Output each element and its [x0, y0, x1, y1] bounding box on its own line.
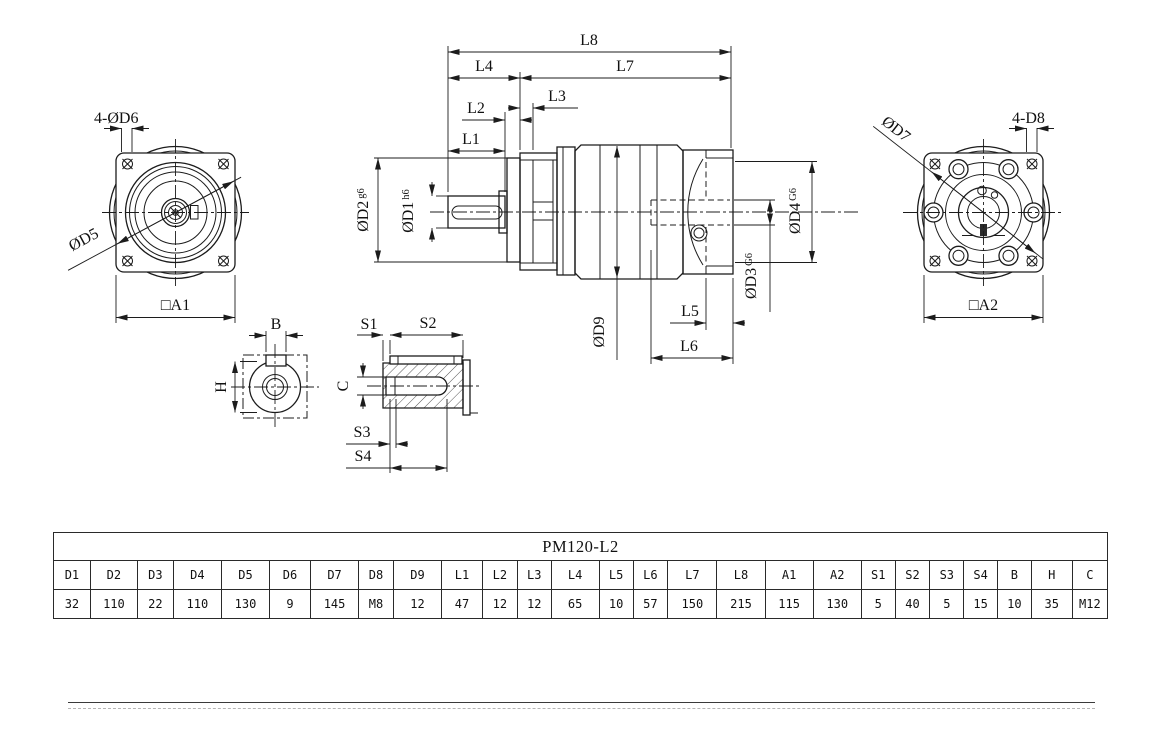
- footer-rule: [68, 702, 1095, 703]
- dim-l3: L3: [508, 88, 578, 150]
- dim-label-l4: L4: [475, 58, 493, 75]
- value-cell: 15: [964, 590, 998, 619]
- value-cell: 65: [551, 590, 599, 619]
- input-flange: [507, 153, 557, 270]
- table-header-row: D1D2D3D4D5D6D7D8D9L1L2L3L4L5L6L7L8A1A2S1…: [54, 561, 1108, 590]
- header-cell: L6: [633, 561, 668, 590]
- value-cell: 5: [930, 590, 964, 619]
- header-cell: A1: [765, 561, 813, 590]
- value-cell: 110: [173, 590, 221, 619]
- clamp-screw: [691, 225, 707, 241]
- table-value-row: 32110221101309145M8124712126510571502151…: [54, 590, 1108, 619]
- value-cell: 40: [895, 590, 930, 619]
- dim-label-a2: □A2: [969, 297, 998, 314]
- gearbox-dimension-drawing: ØD5 4-ØD6 □A1: [0, 0, 1161, 520]
- header-cell: D5: [221, 561, 269, 590]
- dim-label-d5: ØD5: [66, 225, 101, 255]
- header-cell: B: [997, 561, 1031, 590]
- header-cell: D4: [173, 561, 221, 590]
- dim-l1: L1: [448, 131, 505, 151]
- dim-label-d4: ØD4G6: [787, 188, 804, 234]
- header-cell: S3: [930, 561, 964, 590]
- dim-label-l1: L1: [462, 131, 480, 148]
- d2-text: ØD2: [355, 201, 372, 232]
- header-cell: L2: [483, 561, 518, 590]
- dimension-table: PM120-L2 D1D2D3D4D5D6D7D8D9L1L2L3L4L5L6L…: [53, 532, 1108, 619]
- d4-text: ØD4: [787, 203, 804, 234]
- table-title-row: PM120-L2: [54, 533, 1108, 561]
- dim-label-l8: L8: [580, 32, 598, 49]
- dim-s2: S2: [390, 315, 463, 358]
- header-cell: L3: [517, 561, 551, 590]
- dim-label-d9: ØD9: [591, 316, 608, 347]
- dim-label-d3: ØD3G6: [743, 253, 760, 299]
- header-cell: L5: [599, 561, 633, 590]
- dim-s1: S1: [357, 316, 390, 361]
- value-cell: 47: [442, 590, 483, 619]
- value-cell: 145: [310, 590, 358, 619]
- rear-flange-view: ØD7 4-D8 □A2: [873, 110, 1064, 323]
- d3-text: ØD3: [743, 268, 760, 299]
- header-cell: D3: [137, 561, 173, 590]
- dim-label-l5: L5: [681, 303, 699, 320]
- value-cell: 115: [765, 590, 813, 619]
- shaft-keyway: [452, 206, 502, 219]
- header-cell: C: [1072, 561, 1107, 590]
- dim-d9: ØD9: [591, 146, 617, 360]
- dim-label-s1: S1: [361, 316, 378, 333]
- header-cell: D7: [310, 561, 358, 590]
- bolt-note-label: 4-ØD6: [94, 110, 138, 127]
- value-cell: 10: [997, 590, 1031, 619]
- value-cell: 130: [221, 590, 269, 619]
- dim-label-a1: □A1: [161, 297, 190, 314]
- footer-dashed-rule: [68, 708, 1095, 709]
- header-cell: S2: [895, 561, 930, 590]
- header-cell: L4: [551, 561, 599, 590]
- dim-label-h: H: [213, 381, 230, 393]
- value-cell: 9: [270, 590, 311, 619]
- d1-text: ØD1: [400, 202, 417, 233]
- header-cell: D2: [90, 561, 137, 590]
- key-strip: [390, 356, 462, 364]
- dim-label-s4: S4: [355, 448, 372, 465]
- model-title: PM120-L2: [54, 533, 1108, 561]
- dim-l8: L8: [448, 32, 731, 192]
- header-cell: D8: [359, 561, 394, 590]
- dim-label-l3: L3: [548, 88, 566, 105]
- header-cell: A2: [813, 561, 861, 590]
- header-cell: D6: [270, 561, 311, 590]
- header-cell: D1: [54, 561, 91, 590]
- d1-tolerance: h6: [401, 189, 412, 200]
- header-cell: S4: [964, 561, 998, 590]
- value-cell: M12: [1072, 590, 1107, 619]
- dim-label-s2: S2: [420, 315, 437, 332]
- value-cell: 12: [393, 590, 441, 619]
- dim-label-c: C: [335, 381, 352, 392]
- value-cell: 150: [668, 590, 717, 619]
- header-cell: S1: [861, 561, 895, 590]
- header-cell: L8: [717, 561, 765, 590]
- value-cell: 57: [633, 590, 668, 619]
- value-cell: 215: [717, 590, 765, 619]
- dim-label-b: B: [271, 316, 282, 333]
- dim-l4-l7: L4 L7: [448, 58, 731, 150]
- value-cell: 22: [137, 590, 173, 619]
- shaft-end-detail-view: B H: [213, 316, 319, 429]
- d3-tolerance: G6: [744, 253, 755, 266]
- dim-label-l6: L6: [680, 338, 698, 355]
- value-cell: 10: [599, 590, 633, 619]
- dim-bolt-holes-d8: 4-D8: [1009, 110, 1054, 152]
- value-cell: 5: [861, 590, 895, 619]
- header-cell: L7: [668, 561, 717, 590]
- dim-label-d2: ØD2g6: [355, 188, 372, 232]
- d2-tolerance: g6: [356, 188, 367, 199]
- dim-bolt-holes-d6: 4-ØD6: [94, 110, 149, 152]
- dim-d3: ØD3G6: [734, 200, 775, 312]
- header-cell: L1: [442, 561, 483, 590]
- value-cell: 32: [54, 590, 91, 619]
- header-cell: D9: [393, 561, 441, 590]
- header-cell: H: [1031, 561, 1072, 590]
- d4-tolerance: G6: [788, 188, 799, 201]
- value-cell: M8: [359, 590, 394, 619]
- value-cell: 35: [1031, 590, 1072, 619]
- dim-label-l2: L2: [467, 100, 485, 117]
- value-cell: 12: [483, 590, 518, 619]
- dim-label-s3: S3: [354, 424, 371, 441]
- key-profile: [266, 355, 286, 366]
- keyway-detail-view: C S1 S2 S3 S4: [335, 315, 480, 473]
- value-cell: 110: [90, 590, 137, 619]
- end-plate: [463, 360, 470, 415]
- value-cell: 130: [813, 590, 861, 619]
- value-cell: 12: [517, 590, 551, 619]
- front-flange-view: ØD5 4-ØD6 □A1: [66, 110, 249, 323]
- dim-label-d7: ØD7: [878, 113, 913, 146]
- bolt-note-label: 4-D8: [1012, 110, 1045, 127]
- dim-label-l7: L7: [616, 58, 634, 75]
- dim-d2: ØD2g6: [355, 158, 509, 262]
- dim-b: B: [249, 316, 303, 352]
- dim-label-d1: ØD1h6: [400, 189, 417, 233]
